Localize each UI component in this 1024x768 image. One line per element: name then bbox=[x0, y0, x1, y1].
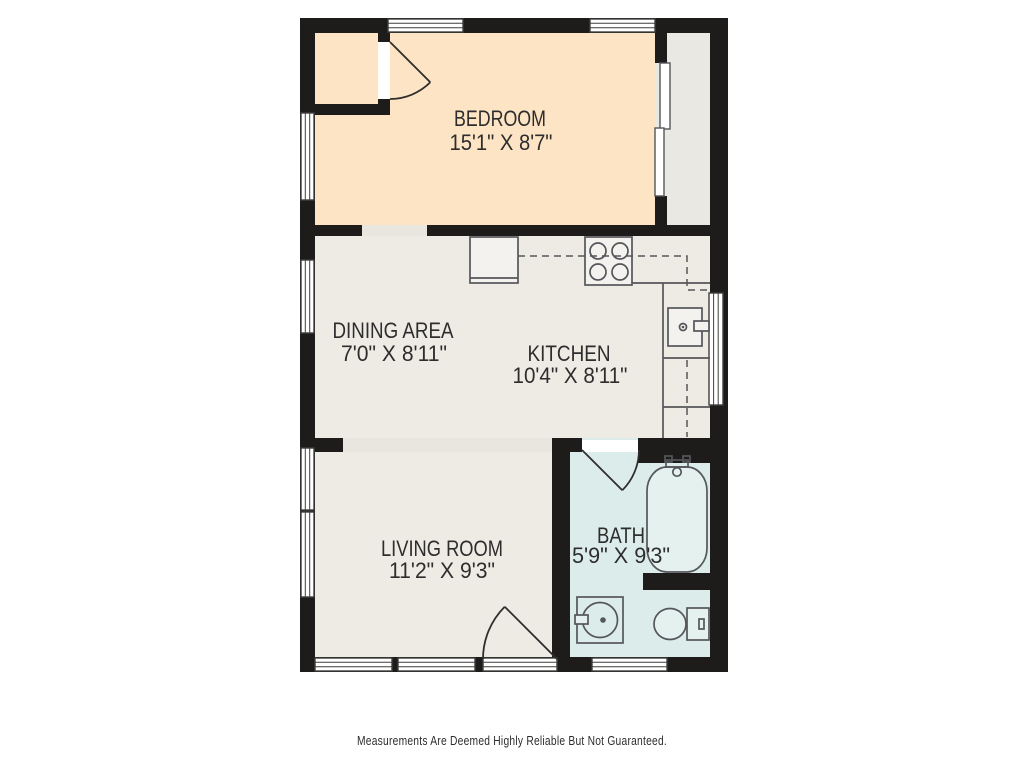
wall-segment bbox=[643, 573, 710, 590]
window-icon bbox=[592, 658, 667, 671]
sliding-door-panel bbox=[660, 63, 670, 129]
toilet-icon bbox=[654, 608, 709, 640]
disclaimer-text: Measurements Are Deemed Highly Reliable … bbox=[357, 733, 667, 748]
window-icon bbox=[301, 512, 314, 597]
window-icon bbox=[301, 113, 314, 200]
window-icon bbox=[301, 260, 314, 333]
wall-segment bbox=[300, 18, 728, 33]
wall-segment bbox=[378, 33, 390, 42]
wall-segment bbox=[655, 196, 667, 236]
bedroom-dining-opening bbox=[362, 225, 427, 236]
entry-door-threshold bbox=[483, 658, 557, 671]
window-icon bbox=[301, 448, 314, 510]
dining-living-opening bbox=[343, 438, 552, 452]
living-dimensions: 11'2" X 9'3" bbox=[389, 558, 495, 583]
kitchen-sink-icon bbox=[668, 308, 709, 346]
floor-plan-drawing: BEDROOM 15'1" X 8'7" DINING AREA 7'0" X … bbox=[0, 0, 1024, 768]
dining-label: DINING AREA bbox=[333, 318, 454, 343]
wall-segment bbox=[655, 33, 667, 63]
wall-segment bbox=[552, 438, 570, 660]
bedroom-label: BEDROOM bbox=[454, 106, 546, 131]
bath-dimensions: 5'9" X 9'3" bbox=[572, 543, 670, 568]
wall-segment bbox=[378, 99, 390, 115]
window-icon bbox=[709, 293, 723, 405]
sliding-door-panel bbox=[655, 128, 664, 196]
window-icon bbox=[315, 658, 392, 671]
window-icon bbox=[590, 19, 655, 32]
window-icon bbox=[388, 19, 463, 32]
window-icon bbox=[398, 658, 475, 671]
wall-segment bbox=[315, 225, 362, 236]
kitchen-dimensions: 10'4" X 8'11" bbox=[513, 363, 628, 388]
bedroom-dimensions: 15'1" X 8'7" bbox=[450, 130, 553, 155]
counter bbox=[470, 237, 518, 283]
dining-dimensions: 7'0" X 8'11" bbox=[341, 341, 447, 366]
stove-icon bbox=[585, 237, 632, 285]
floor-plan-page: BEDROOM 15'1" X 8'7" DINING AREA 7'0" X … bbox=[0, 0, 1024, 768]
wall-segment bbox=[315, 438, 343, 452]
wall-segment bbox=[427, 225, 710, 236]
